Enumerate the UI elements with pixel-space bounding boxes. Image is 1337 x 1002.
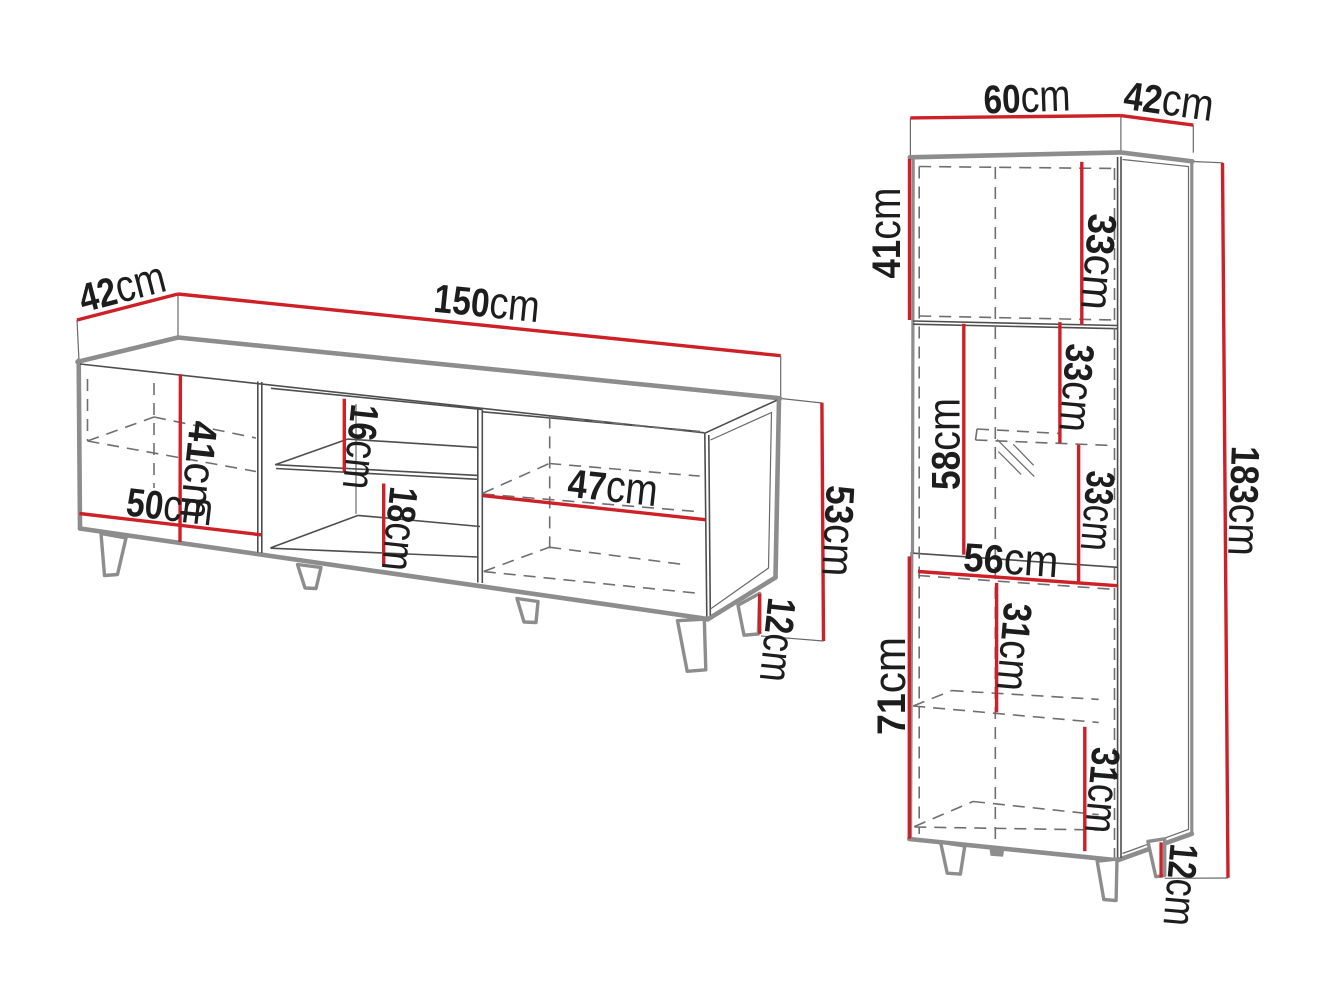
svg-text:12cm: 12cm [1154, 842, 1212, 928]
svg-text:60cm: 60cm [983, 69, 1072, 123]
svg-text:56cm: 56cm [962, 530, 1060, 588]
svg-text:183cm: 183cm [1218, 445, 1273, 557]
svg-text:33cm: 33cm [1071, 212, 1130, 312]
svg-text:41cm: 41cm [859, 188, 910, 279]
svg-text:18cm: 18cm [372, 485, 432, 574]
svg-text:31cm: 31cm [987, 601, 1045, 693]
svg-text:12cm: 12cm [750, 596, 810, 685]
svg-text:53cm: 53cm [812, 484, 868, 578]
svg-text:31cm: 31cm [1075, 745, 1133, 835]
svg-text:16cm: 16cm [333, 402, 393, 492]
svg-text:33cm: 33cm [1071, 469, 1129, 553]
svg-text:33cm: 33cm [1049, 342, 1107, 434]
svg-text:71cm: 71cm [864, 637, 915, 735]
svg-text:58cm: 58cm [919, 398, 970, 490]
